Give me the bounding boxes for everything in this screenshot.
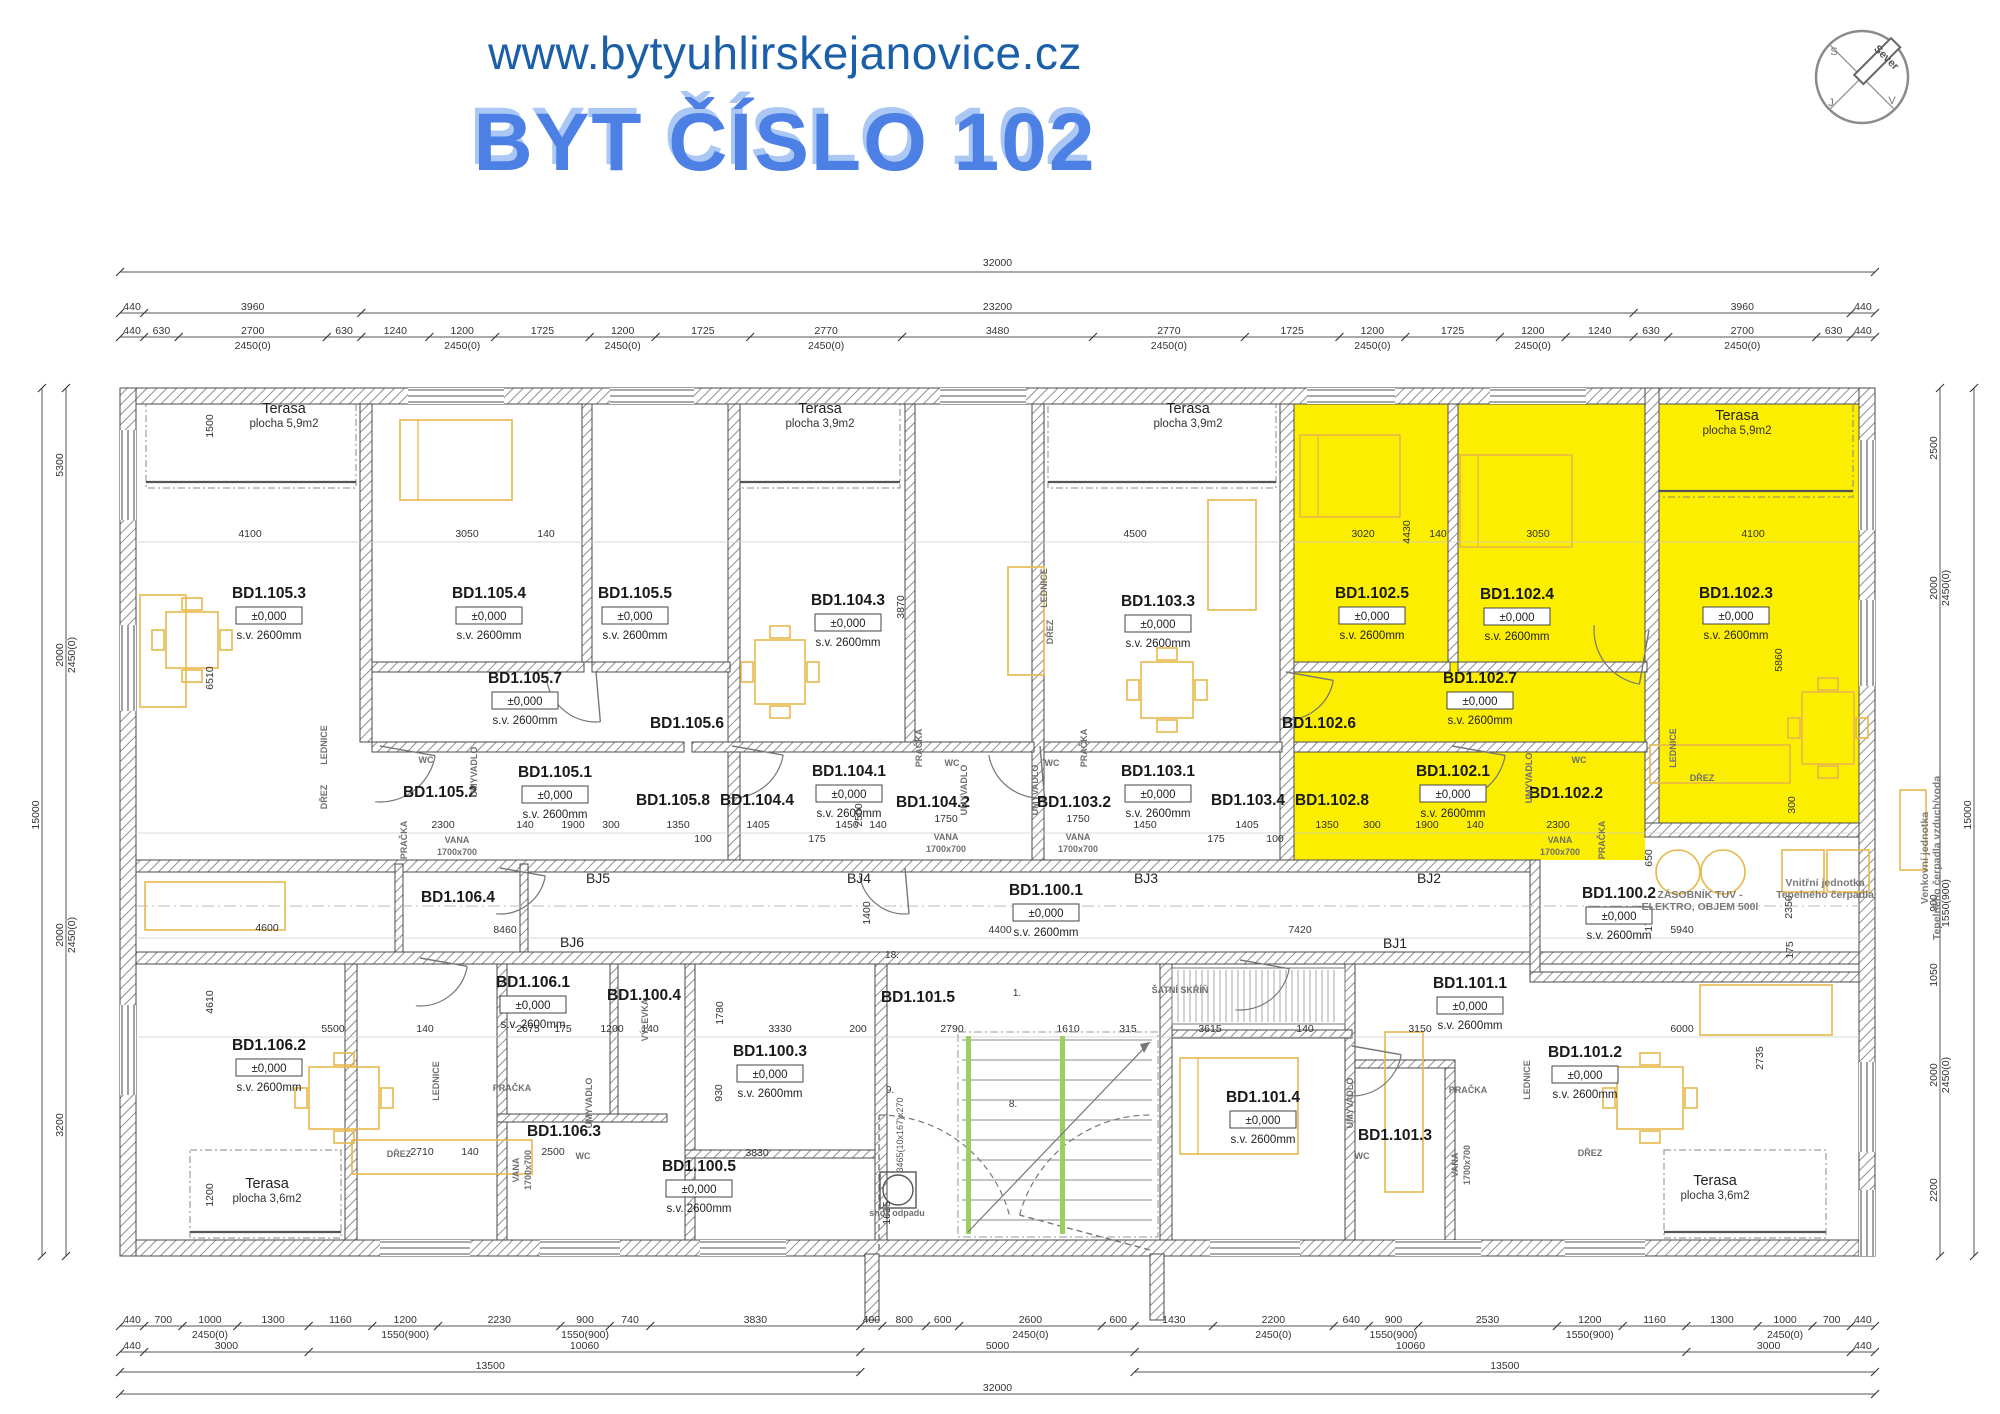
fixture-label: VANA xyxy=(1450,1152,1460,1177)
terrace-area: plocha 5,9m2 xyxy=(1702,425,1771,437)
dim-text: 3870 xyxy=(895,595,907,619)
fixture-label: VANA xyxy=(1548,835,1573,845)
fixture-label: LEDNICE xyxy=(1668,728,1678,768)
plan-line xyxy=(1352,1046,1401,1055)
dim-text: 3960 xyxy=(241,301,265,313)
fixture-label: UMYVADLO xyxy=(959,765,969,816)
room-id: BD1.102.8 xyxy=(1295,792,1369,809)
fixture-label: LEDNICE xyxy=(431,1061,441,1101)
dim-text: 1200 xyxy=(1578,1314,1602,1326)
room-clear-height: s.v. 2600mm xyxy=(237,630,302,642)
terrace-area: plocha 3,6m2 xyxy=(1680,1190,1749,1202)
fixture-label: UMYVADLO xyxy=(1345,1078,1355,1129)
room-clear-height: s.v. 2600mm xyxy=(501,1019,566,1031)
dim-text: 2450(0) xyxy=(1515,340,1551,352)
stairs xyxy=(880,1032,1158,1237)
room-label: BD1.101.5 xyxy=(881,989,955,1006)
room-label: BD1.106.4 xyxy=(421,889,495,906)
dim-text: 1725 xyxy=(691,325,715,337)
fixture-label: DŘEZ xyxy=(387,1148,412,1159)
dim-text: 2770 xyxy=(1157,325,1181,337)
room-clear-height: s.v. 2600mm xyxy=(1340,630,1405,642)
room-label: BD1.100.1±0,000s.v. 2600mm xyxy=(1009,882,1083,939)
dim-text: 2450(0) xyxy=(1255,1329,1291,1341)
dim-text: 630 xyxy=(153,325,171,337)
dim-text: 630 xyxy=(1642,325,1660,337)
room-clear-height: s.v. 2600mm xyxy=(1587,930,1652,942)
room-elevation: ±0,000 xyxy=(515,1000,550,1012)
wall xyxy=(345,964,357,1240)
room-elevation: ±0,000 xyxy=(1718,611,1753,623)
fixture-label: PRAČKA xyxy=(1449,1084,1488,1095)
room-id: BD1.106.1 xyxy=(496,974,570,991)
room-clear-height: s.v. 2600mm xyxy=(1014,927,1079,939)
room-clear-height: s.v. 2600mm xyxy=(1421,808,1486,820)
room-id: BD1.102.4 xyxy=(1480,586,1554,603)
room-clear-height: s.v. 2600mm xyxy=(1438,1020,1503,1032)
terrace-outline xyxy=(146,404,356,488)
floor-plan: 440396023200396044044063027002450(0)6301… xyxy=(0,0,2000,1414)
fixture-label: UMYVADLO xyxy=(1030,765,1040,816)
room-elevation: ±0,000 xyxy=(830,618,865,630)
wall xyxy=(685,1150,875,1158)
room-label: BD1.105.6 xyxy=(650,715,724,732)
wall xyxy=(1294,742,1647,752)
water-tank xyxy=(1701,850,1745,894)
stair-step-number: 1. xyxy=(1013,988,1021,999)
wall xyxy=(582,404,592,662)
dim-text: 1610 xyxy=(1056,1023,1080,1035)
junction-label: BJ2 xyxy=(1417,870,1441,886)
room-clear-height: s.v. 2600mm xyxy=(816,637,881,649)
dim-text: 1000 xyxy=(1773,1314,1797,1326)
dim-text: 4400 xyxy=(988,924,1012,936)
dim-text: 13500 xyxy=(476,1360,505,1372)
fixture-label: WC xyxy=(1572,755,1587,765)
wall xyxy=(1294,662,1450,672)
room-id: BD1.105.5 xyxy=(598,585,672,602)
page: www.bytyuhlirskejanovice.cz BYT ČÍSLO 10… xyxy=(0,0,2000,1414)
fixture-label: VÝLEVKA xyxy=(639,998,650,1041)
page-title: BYT ČÍSLO 102 xyxy=(0,96,1570,190)
dim-text: 1900 xyxy=(1415,819,1439,831)
dim-text: 10060 xyxy=(570,1340,599,1352)
dim-text: 32000 xyxy=(983,257,1012,269)
fixture-label: PRAČKA xyxy=(398,820,409,859)
dim-text: 1050 xyxy=(1928,963,1940,987)
dim-text: 140 xyxy=(537,528,555,540)
fixture-label: WC xyxy=(1045,758,1060,768)
fixture-label: WC xyxy=(419,755,434,765)
fixture-label: UMYVADLO xyxy=(584,1078,594,1129)
wall xyxy=(520,864,528,952)
fixture-label: 1700x700 xyxy=(1462,1145,1472,1185)
room-id: BD1.100.5 xyxy=(662,1158,736,1175)
dim-text: 2500 xyxy=(541,1146,565,1158)
dim-text: 2710 xyxy=(410,1146,434,1158)
room-elevation: ±0,000 xyxy=(1601,911,1636,923)
terrace-label: Terasaplocha 5,9m2 xyxy=(249,401,318,430)
dim-text: 5500 xyxy=(321,1023,345,1035)
dim-text: 900 xyxy=(576,1314,594,1326)
room-id: BD1.102.3 xyxy=(1699,585,1773,602)
dim-text: 1405 xyxy=(746,819,770,831)
table xyxy=(1141,662,1193,718)
dim-text: 3200 xyxy=(54,1113,66,1137)
dim-text: 3000 xyxy=(215,1340,239,1352)
fixture-label: shoz odpadu xyxy=(869,1208,925,1218)
room-label: BD1.105.8 xyxy=(636,792,710,809)
chair xyxy=(1640,1131,1660,1143)
room-label: BD1.105.7±0,000s.v. 2600mm xyxy=(488,670,562,727)
wall xyxy=(1530,972,1859,982)
dim-text: 1550(900) xyxy=(381,1329,429,1341)
table xyxy=(755,640,805,704)
dim-text: 1750 xyxy=(1066,813,1090,825)
dim-text: 3615 xyxy=(1198,1023,1222,1035)
room-id: BD1.100.1 xyxy=(1009,882,1083,899)
chair xyxy=(152,630,164,650)
dim-text: 440 xyxy=(1854,1340,1872,1352)
room-id: BD1.102.7 xyxy=(1443,670,1517,687)
terrace-area: plocha 3,6m2 xyxy=(232,1193,301,1205)
highlight-layer xyxy=(146,393,1859,1238)
fixture-label: VANA xyxy=(934,832,959,842)
dim-text: 3050 xyxy=(1526,528,1550,540)
dim-text: 175 xyxy=(1207,833,1225,845)
room-id: BD1.101.4 xyxy=(1226,1089,1300,1106)
chair xyxy=(1157,720,1177,732)
dim-text: 200 xyxy=(849,1023,867,1035)
wall xyxy=(1645,823,1859,837)
room-label: BD1.103.2 xyxy=(1037,794,1111,811)
dim-text: 1300 xyxy=(1710,1314,1734,1326)
dim-text: 1200 xyxy=(600,1023,624,1035)
plan-line xyxy=(596,672,600,722)
dim-text: 2500 xyxy=(1928,436,1940,460)
table xyxy=(166,612,218,668)
room-label: BD1.104.3±0,000s.v. 2600mm xyxy=(811,592,885,649)
dim-text: 2450(0) xyxy=(1724,340,1760,352)
junction-label: BJ6 xyxy=(560,934,584,950)
wall xyxy=(1160,964,1172,1240)
fixture-label: LEDNICE xyxy=(1522,1060,1532,1100)
room-elevation: ±0,000 xyxy=(1499,612,1534,624)
fixture-label: ŠATNÍ SKŘÍŇ xyxy=(1152,984,1209,995)
fixture-label: WC xyxy=(576,1151,591,1161)
dim-text: 6000 xyxy=(1670,1023,1694,1035)
fixture-label: VANA xyxy=(1066,832,1091,842)
dim-text: 700 xyxy=(1823,1314,1841,1326)
dim-text: 1200 xyxy=(204,1183,216,1207)
room-id: BD1.103.2 xyxy=(1037,794,1111,811)
dim-text: 3330 xyxy=(768,1023,792,1035)
dim-text: 1400 xyxy=(861,901,873,925)
dim-text: 1350 xyxy=(1315,819,1339,831)
dim-text: 1725 xyxy=(1441,325,1465,337)
dim-text: 140 xyxy=(1466,819,1484,831)
room-label: BD1.101.3 xyxy=(1358,1127,1432,1144)
dim-text: 3150 xyxy=(1408,1023,1432,1035)
room-clear-height: s.v. 2600mm xyxy=(667,1203,732,1215)
room-clear-height: s.v. 2600mm xyxy=(738,1088,803,1100)
room-elevation: ±0,000 xyxy=(1435,789,1470,801)
compass-letter: S xyxy=(1830,46,1837,58)
fixture-label: WC xyxy=(945,758,960,768)
dim-text: 140 xyxy=(1429,528,1447,540)
room-label: BD1.105.5±0,000s.v. 2600mm xyxy=(598,585,672,642)
dim-text: 740 xyxy=(621,1314,639,1326)
dim-text: 2230 xyxy=(488,1314,512,1326)
terrace-label: Terasaplocha 3,9m2 xyxy=(785,401,854,430)
room-id: BD1.102.6 xyxy=(1282,715,1356,732)
wall xyxy=(136,952,1859,964)
dim-text: 2200 xyxy=(1262,1314,1286,1326)
dim-text: 2450(0) xyxy=(66,917,78,953)
dim-text: 2450(0) xyxy=(235,340,271,352)
dim-text: 3000 xyxy=(1757,1340,1781,1352)
dim-text: 1450 xyxy=(1133,819,1157,831)
dim-text: 4600 xyxy=(255,922,279,934)
stair-step-number: 18. xyxy=(885,950,899,961)
dim-text: 4430 xyxy=(1401,520,1413,544)
room-elevation: ±0,000 xyxy=(831,789,866,801)
dim-text: 2450(0) xyxy=(1940,1057,1952,1093)
dim-text: 1500 xyxy=(204,414,216,438)
dim-text: 2450(0) xyxy=(1940,570,1952,606)
terrace-name: Terasa xyxy=(798,401,842,417)
wall xyxy=(1645,388,1659,837)
dim-text: 2000 xyxy=(54,643,66,667)
dim-text: 6510 xyxy=(204,666,216,690)
room-id: BD1.105.2 xyxy=(403,784,477,801)
dim-text: 1200 xyxy=(611,325,635,337)
room-elevation: ±0,000 xyxy=(681,1184,716,1196)
tech-label: Vnitřní jednotka xyxy=(1785,877,1865,889)
fixture-label: LEDNICE xyxy=(319,725,329,765)
dim-text: 1240 xyxy=(384,325,408,337)
room-label: BD1.103.1±0,000s.v. 2600mm xyxy=(1121,763,1195,820)
terrace-label: Terasaplocha 3,6m2 xyxy=(1680,1173,1749,1202)
room-label: BD1.101.1±0,000s.v. 2600mm xyxy=(1433,975,1507,1032)
dim-text: 2450(0) xyxy=(605,340,641,352)
dim-text: 3960 xyxy=(1731,301,1755,313)
room-elevation: ±0,000 xyxy=(617,611,652,623)
dim-text: 175 xyxy=(808,833,826,845)
wall xyxy=(395,864,403,952)
room-label: BD1.102.2 xyxy=(1529,785,1603,802)
dim-text: 2300 xyxy=(431,819,455,831)
room-label: BD1.105.3±0,000s.v. 2600mm xyxy=(232,585,306,642)
chair xyxy=(1127,680,1139,700)
sofa xyxy=(1700,985,1832,1035)
room-id: BD1.105.8 xyxy=(636,792,710,809)
tech-label: Tepelného čerpadla vzduch/voda xyxy=(1931,776,1943,941)
junction-label: BJ4 xyxy=(847,870,871,886)
dim-text: 440 xyxy=(1854,325,1872,337)
dim-text: 1200 xyxy=(451,325,475,337)
room-clear-height: s.v. 2600mm xyxy=(1485,631,1550,643)
dim-text: 600 xyxy=(934,1314,952,1326)
junction-label: BJ3 xyxy=(1134,870,1158,886)
wall xyxy=(685,964,695,1240)
dim-text: 700 xyxy=(155,1314,173,1326)
room-label: BD1.104.1±0,000s.v. 2600mm xyxy=(812,763,886,820)
room-label: BD1.105.4±0,000s.v. 2600mm xyxy=(452,585,526,642)
terrace-label: Terasaplocha 3,9m2 xyxy=(1153,401,1222,430)
bed xyxy=(400,420,512,500)
compass-letter: V xyxy=(1888,95,1896,107)
dim-text: 800 xyxy=(896,1314,914,1326)
dim-text: 140 xyxy=(416,1023,434,1035)
plan-line xyxy=(968,1042,1150,1232)
junction-label: BJ5 xyxy=(586,870,610,886)
dim-text: 2000 xyxy=(1928,1063,1940,1087)
room-label: BD1.101.4±0,000s.v. 2600mm xyxy=(1226,1089,1300,1146)
dim-text: 630 xyxy=(335,325,353,337)
dim-text: 100 xyxy=(694,833,712,845)
dim-text: 1550(900) xyxy=(1566,1329,1614,1341)
terrace-name: Terasa xyxy=(1166,401,1210,417)
dim-text: 440 xyxy=(123,325,141,337)
stair-rail xyxy=(966,1036,971,1234)
wall xyxy=(360,404,372,742)
dim-text: 4500 xyxy=(1123,528,1147,540)
room-id: BD1.101.5 xyxy=(881,989,955,1006)
dim-text: 2530 xyxy=(1476,1314,1500,1326)
room-id: BD1.103.3 xyxy=(1121,593,1195,610)
fixture-label: WC xyxy=(1355,1151,1370,1161)
dim-text: 2700 xyxy=(241,325,265,337)
room-clear-height: s.v. 2600mm xyxy=(1126,808,1191,820)
wall xyxy=(372,742,684,752)
dim-text: 13500 xyxy=(1490,1360,1519,1372)
dim-text: 4100 xyxy=(238,528,262,540)
room-id: BD1.106.2 xyxy=(232,1037,306,1054)
room-id: BD1.102.1 xyxy=(1416,763,1490,780)
room-label: BD1.103.4 xyxy=(1211,792,1285,809)
terrace-area: plocha 3,9m2 xyxy=(785,418,854,430)
chair xyxy=(770,626,790,638)
dim-text: 300 xyxy=(1786,796,1798,814)
stair-step-number: 9. xyxy=(886,1085,894,1096)
dim-text: 1350 xyxy=(666,819,690,831)
dim-text: 5300 xyxy=(54,453,66,477)
terrace-name: Terasa xyxy=(1693,1173,1737,1189)
dim-text: 1300 xyxy=(261,1314,285,1326)
room-id: BD1.102.2 xyxy=(1529,785,1603,802)
dim-text: 300 xyxy=(1363,819,1381,831)
chair xyxy=(182,670,202,682)
dim-text: 300 xyxy=(602,819,620,831)
chair xyxy=(220,630,232,650)
dim-text: 440 xyxy=(123,1314,141,1326)
room-label: BD1.102.1±0,000s.v. 2600mm xyxy=(1416,763,1490,820)
room-label: BD1.101.2±0,000s.v. 2600mm xyxy=(1548,1044,1622,1101)
dim-text: 1000 xyxy=(198,1314,222,1326)
room-clear-height: s.v. 2600mm xyxy=(457,630,522,642)
room-clear-height: s.v. 2600mm xyxy=(237,1082,302,1094)
fixture-label: PRAČKA xyxy=(1078,728,1089,767)
tech-label: Tepelného čerpadla xyxy=(1776,889,1874,901)
fixture-label: LEDNICE xyxy=(1039,568,1049,608)
room-elevation: ±0,000 xyxy=(251,611,286,623)
dim-text: 15000 xyxy=(30,800,42,829)
fixture-label: 1700x700 xyxy=(1058,844,1098,854)
dim-text: 1200 xyxy=(1521,325,1545,337)
chair xyxy=(1195,680,1207,700)
dim-text: 5000 xyxy=(986,1340,1010,1352)
chair xyxy=(381,1088,393,1108)
dim-text: 140 xyxy=(461,1146,479,1158)
dim-text: 175 xyxy=(1784,941,1796,959)
dim-text: 32000 xyxy=(983,1382,1012,1394)
dim-text: 1160 xyxy=(1643,1314,1666,1326)
room-elevation: ±0,000 xyxy=(537,790,572,802)
room-id: BD1.105.4 xyxy=(452,585,526,602)
dim-text: 2450(0) xyxy=(1354,340,1390,352)
dim-text: 2450(0) xyxy=(66,637,78,673)
dim-text: 2450(0) xyxy=(444,340,480,352)
room-label: BD1.102.5±0,000s.v. 2600mm xyxy=(1335,585,1409,642)
dim-text: 4100 xyxy=(1741,528,1765,540)
dim-text: 2000 xyxy=(54,923,66,947)
dim-text: 140 xyxy=(1296,1023,1314,1035)
dim-text: 1750 xyxy=(934,813,958,825)
room-clear-height: s.v. 2600mm xyxy=(523,809,588,821)
chair xyxy=(1685,1088,1697,1108)
dim-text: 2200 xyxy=(1928,1178,1940,1202)
terrace-label: Terasaplocha 3,6m2 xyxy=(232,1176,301,1205)
dim-text: 440 xyxy=(1854,301,1872,313)
fixture-label: VANA xyxy=(511,1157,521,1182)
wall xyxy=(1448,404,1458,662)
compass: SeverSJV xyxy=(1816,31,1908,123)
dim-text: 2450(0) xyxy=(1151,340,1187,352)
wall xyxy=(905,404,915,742)
compass-letter: J xyxy=(1828,97,1834,109)
dim-text: 3020 xyxy=(1351,528,1375,540)
wall xyxy=(1530,860,1540,978)
tech-label: Venkovní jednotka xyxy=(1919,812,1931,904)
tech-label: ZÁSOBNÍK TUV - xyxy=(1657,888,1743,901)
fixture-label: 1700x700 xyxy=(1540,847,1580,857)
room-label: BD1.100.5±0,000s.v. 2600mm xyxy=(662,1158,736,1215)
website-url[interactable]: www.bytyuhlirskejanovice.cz xyxy=(0,26,1570,80)
dim-text: 15000 xyxy=(1962,800,1974,829)
room-elevation: ±0,000 xyxy=(1452,1001,1487,1013)
dim-text: 440 xyxy=(123,301,141,313)
dim-text: 315 xyxy=(1119,1023,1137,1035)
dim-text: 1725 xyxy=(1280,325,1304,337)
table xyxy=(309,1067,379,1129)
room-label: BD1.104.4 xyxy=(720,792,794,809)
dim-text: 600 xyxy=(1109,1314,1127,1326)
terrace-area: plocha 5,9m2 xyxy=(249,418,318,430)
fixture-label: 1700x700 xyxy=(437,847,477,857)
wall xyxy=(692,742,1034,752)
room-label: BD1.100.3±0,000s.v. 2600mm xyxy=(733,1043,807,1100)
wall xyxy=(497,1114,667,1122)
dim-text: 440 xyxy=(123,1340,141,1352)
fixture-label: DŘEZ xyxy=(1690,772,1715,783)
room-elevation: ±0,000 xyxy=(471,611,506,623)
terrace-outline xyxy=(1048,404,1276,488)
kitchen-counter xyxy=(1385,1032,1423,1192)
dim-text: 1240 xyxy=(1588,325,1612,337)
dim-text: 3050 xyxy=(455,528,479,540)
room-id: BD1.105.6 xyxy=(650,715,724,732)
